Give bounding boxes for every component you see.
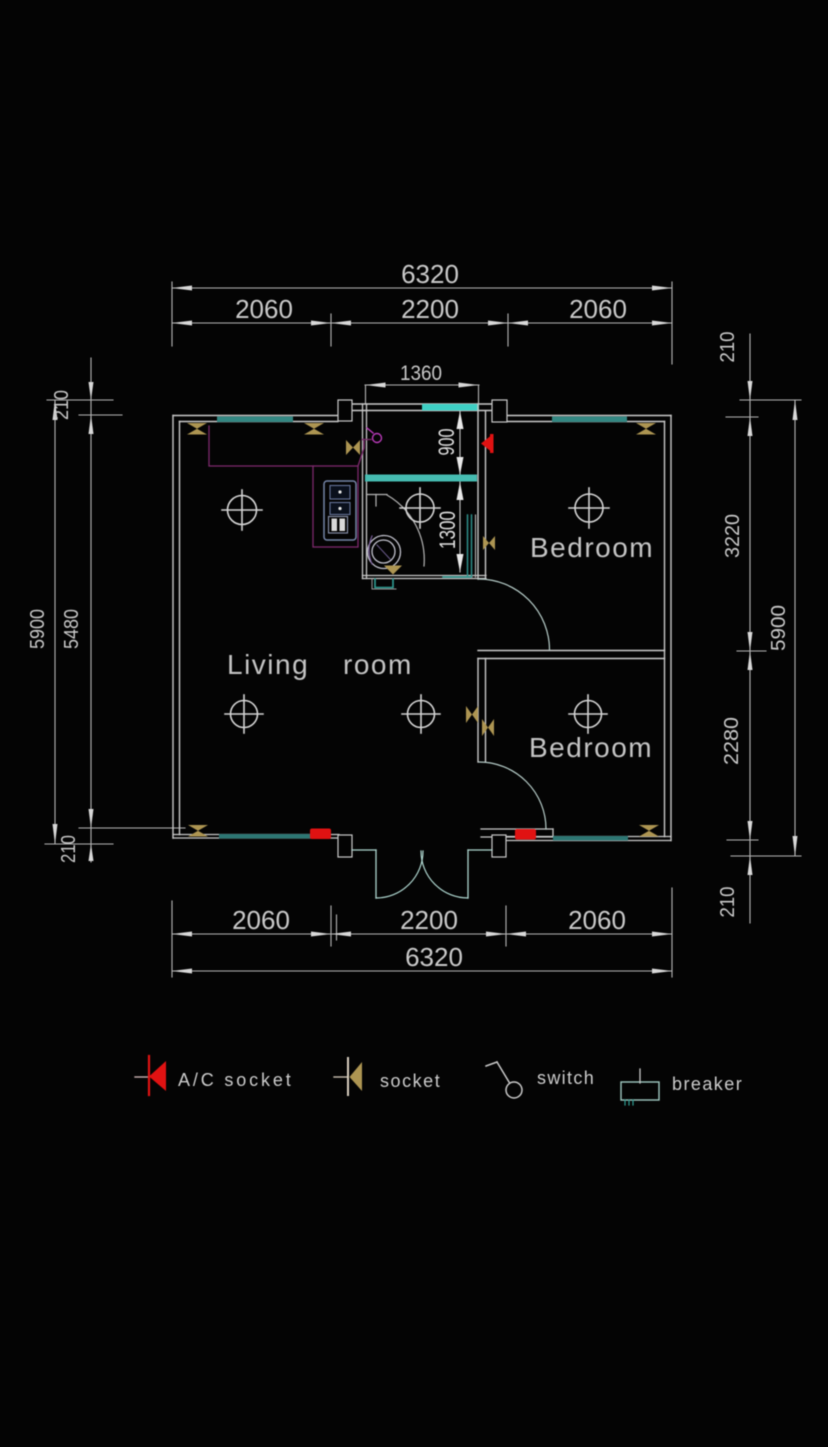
svg-text:switch: switch — [537, 1068, 595, 1088]
svg-text:breaker: breaker — [672, 1074, 743, 1094]
svg-text:210: 210 — [58, 835, 80, 863]
svg-text:6320: 6320 — [401, 259, 459, 289]
svg-text:210: 210 — [717, 887, 739, 918]
svg-text:2280: 2280 — [721, 717, 743, 765]
svg-text:5480: 5480 — [61, 609, 83, 649]
svg-text:socket: socket — [380, 1071, 441, 1091]
svg-text:2060: 2060 — [232, 905, 290, 935]
svg-text:Living: Living — [227, 649, 309, 680]
svg-text:room: room — [343, 649, 413, 680]
svg-text:5900: 5900 — [768, 605, 790, 651]
svg-text:1300: 1300 — [435, 511, 460, 549]
svg-text:6320: 6320 — [405, 942, 463, 972]
svg-text:2060: 2060 — [568, 905, 626, 935]
svg-text:5900: 5900 — [27, 609, 49, 649]
svg-text:900: 900 — [434, 429, 459, 456]
svg-text:2060: 2060 — [235, 294, 293, 324]
svg-text:2060: 2060 — [569, 294, 627, 324]
svg-text:2200: 2200 — [400, 905, 458, 935]
svg-text:1360: 1360 — [400, 362, 442, 385]
svg-text:210: 210 — [51, 390, 73, 420]
svg-text:3220: 3220 — [722, 514, 744, 558]
svg-text:Bedroom: Bedroom — [530, 532, 654, 563]
svg-text:2200: 2200 — [401, 294, 459, 324]
svg-text:210: 210 — [717, 332, 739, 363]
svg-text:Bedroom: Bedroom — [529, 732, 653, 763]
